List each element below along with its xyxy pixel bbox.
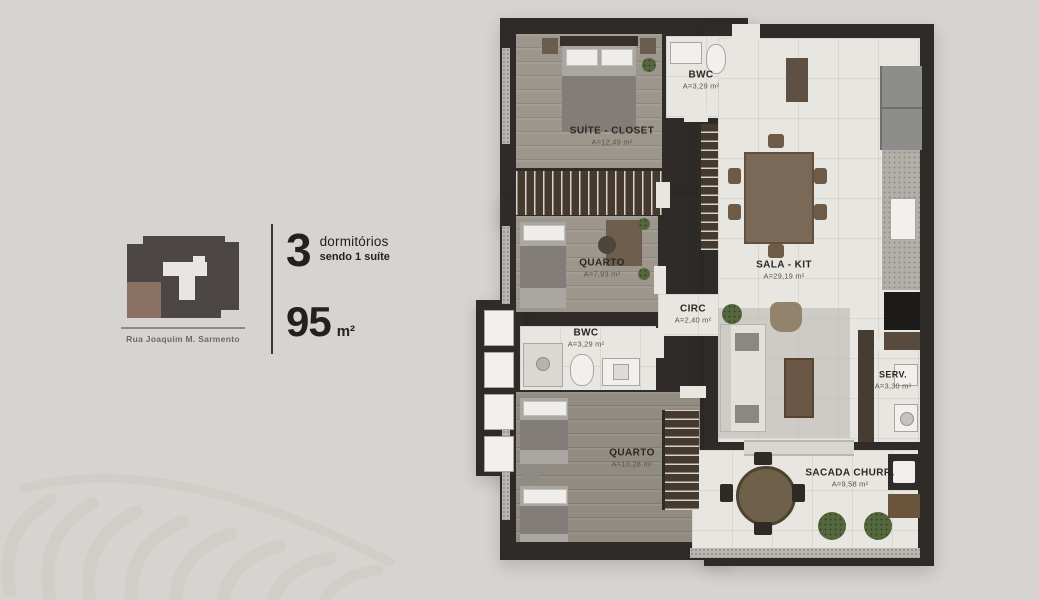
pillow: [523, 225, 565, 241]
total-area-unit: m²: [337, 323, 355, 340]
dining-chair: [728, 168, 741, 184]
room-area: A=7,93 m²: [579, 270, 625, 280]
footprint-notch: [127, 236, 143, 244]
quarto1-chair: [598, 236, 616, 254]
balcony-chair: [720, 484, 733, 502]
sofa: [720, 324, 766, 432]
coffee-table: [784, 358, 814, 418]
shaft-panel: [484, 436, 514, 472]
blanket: [520, 246, 566, 288]
bedrooms-count: 3: [286, 230, 311, 271]
room-area: A=2,40 m²: [675, 316, 712, 326]
footprint-notch: [221, 310, 239, 318]
room-area: A=3,29 m²: [683, 82, 720, 92]
street-line: [121, 327, 245, 329]
suite-double-bed: [562, 46, 636, 132]
label-circ: CIRC A=2,40 m²: [675, 303, 712, 326]
floor-plan: SUÍTE - CLOSET A=12,49 m² BWC A=3,29 m² …: [452, 6, 987, 578]
suite-nightstand: [542, 38, 558, 54]
plant-icon: [722, 304, 742, 324]
quarto1-bed: [520, 222, 566, 308]
sofa-back: [721, 325, 731, 431]
grill-top: [893, 461, 915, 483]
room-name: QUARTO: [609, 448, 655, 459]
armchair: [770, 302, 802, 332]
plant-icon: [642, 58, 656, 72]
label-bwc1: BWC A=3,29 m²: [683, 69, 720, 92]
entry-cabinet: [786, 58, 808, 102]
window-quarto1: [502, 226, 510, 304]
shaft-panel: [484, 310, 514, 346]
pillow: [601, 49, 633, 66]
kitchen-sink: [890, 198, 916, 240]
door-quarto1: [654, 266, 666, 294]
bedrooms-label: dormitórios: [320, 234, 390, 249]
footprint-courtyard: [193, 256, 205, 266]
washer-door: [900, 412, 914, 426]
label-serv: SERV. A=3,30 m²: [875, 369, 912, 390]
dining-chair: [768, 134, 784, 148]
label-bwc2: BWC A=3,29 m²: [568, 327, 605, 350]
door-bwc1: [684, 110, 708, 122]
kitchen-wood-cabinet: [884, 332, 920, 350]
bedrooms-note: sendo 1 suíte: [320, 251, 390, 263]
footprint-highlight-unit: [127, 282, 161, 318]
cooktop: [884, 292, 920, 330]
quarto2-bed-2: [520, 486, 568, 542]
window-suite: [502, 48, 510, 144]
footprint-notch: [225, 236, 239, 242]
room-name: QUARTO: [579, 258, 625, 269]
room-name: SACADA CHURR.: [805, 468, 894, 479]
shell-watermark: [0, 430, 400, 600]
tv-panel-wall: [858, 330, 874, 442]
bwc2-toilet: [570, 354, 594, 386]
door-suite: [656, 182, 670, 208]
bwc2-shower: [523, 343, 563, 387]
blanket: [520, 506, 568, 534]
room-name: CIRC: [680, 304, 706, 315]
total-area-value: 95: [286, 301, 331, 343]
door-quarto2: [680, 386, 706, 398]
room-area: A=9,58 m²: [805, 480, 894, 490]
plant-icon: [638, 218, 650, 230]
balcony-table: [736, 466, 796, 526]
dining-table: [744, 152, 814, 244]
room-name: SUÍTE - CLOSET: [570, 126, 655, 137]
quarto2-bed-1: [520, 398, 568, 464]
bedrooms-texts: dormitórios sendo 1 suíte: [320, 230, 390, 263]
door-entry: [732, 24, 760, 40]
suite-bed-headboard: [560, 36, 638, 46]
shower-drain: [536, 357, 550, 371]
room-name: SERV.: [879, 369, 907, 379]
pillow: [523, 489, 567, 504]
balcony-chair: [754, 452, 772, 465]
pillow: [566, 49, 598, 66]
blanket: [562, 76, 636, 132]
sofa-pillow: [735, 333, 759, 351]
room-name: SALA - KIT: [756, 260, 812, 271]
label-quarto1: QUARTO A=7,93 m²: [579, 257, 625, 280]
footprint-courtyard: [179, 276, 195, 300]
suite-closet-rail: [516, 168, 662, 215]
door-bwc2: [652, 328, 664, 358]
bedrooms-row: 3 dormitórios sendo 1 suíte: [286, 230, 390, 271]
divider: [271, 224, 273, 354]
site-block: Rua Joaquim M. Sarmento: [118, 236, 248, 344]
sofa-pillow: [735, 405, 759, 423]
kitchen-cabinets: [880, 66, 922, 150]
room-area: A=29,19 m²: [756, 272, 812, 282]
plant-icon: [638, 268, 650, 280]
quarto2-wardrobe: [662, 410, 699, 510]
dining-chair: [768, 244, 784, 258]
blanket: [520, 420, 568, 450]
label-suite: SUÍTE - CLOSET A=12,49 m²: [570, 125, 655, 148]
shaft-panel: [484, 352, 514, 388]
washing-machine: [894, 404, 918, 432]
bwc1-sink: [670, 42, 702, 64]
room-name: BWC: [688, 70, 713, 81]
room-area: A=12,49 m²: [570, 138, 655, 148]
suite-nightstand: [640, 38, 656, 54]
quarto2-nightstand: [522, 468, 540, 482]
bwc2-vanity: [602, 358, 640, 386]
barbecue-counter: [888, 494, 920, 518]
dining-chair: [814, 168, 827, 184]
label-sala: SALA - KIT A=29,19 m²: [756, 259, 812, 282]
sink-bowl: [613, 364, 629, 380]
plant-icon: [818, 512, 846, 540]
dining-chair: [814, 204, 827, 220]
page: Rua Joaquim M. Sarmento 3 dormitórios se…: [0, 0, 1039, 582]
specs: 3 dormitórios sendo 1 suíte 95 m²: [286, 230, 390, 343]
dining-chair: [728, 204, 741, 220]
total-area: 95 m²: [286, 301, 390, 343]
street-label: Rua Joaquim M. Sarmento: [118, 334, 248, 344]
label-quarto2: QUARTO A=10,28 m²: [609, 447, 655, 470]
room-name: BWC: [573, 328, 598, 339]
balcony-balustrade: [690, 548, 920, 558]
cabinet-divider: [882, 107, 922, 109]
balcony-chair: [754, 522, 772, 535]
shaft-panel: [484, 394, 514, 430]
balcony-chair: [792, 484, 805, 502]
building-footprint-icon: [127, 236, 239, 318]
room-area: A=3,30 m²: [875, 381, 912, 391]
room-area: A=10,28 m²: [609, 460, 655, 470]
pillow: [523, 401, 567, 416]
label-sacada: SACADA CHURR. A=9,58 m²: [805, 467, 894, 490]
room-area: A=3,29 m²: [568, 340, 605, 350]
